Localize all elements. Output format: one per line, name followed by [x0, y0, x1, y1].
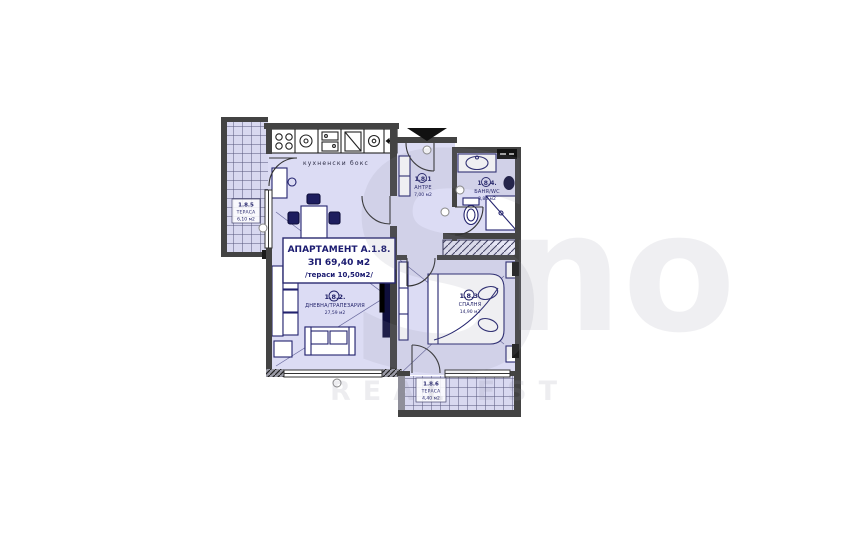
bedroom-label: 1.8.3. СПАЛНЯ 14,90 м2	[459, 290, 482, 315]
floor-plan-page: кухненски бокс АПАРТАМЕНТ А.1.8. ЗП 69,4…	[0, 0, 846, 557]
terrace-left-id: 1.8.5	[238, 203, 254, 209]
chair-icon	[329, 212, 340, 224]
living-room-id: 1.8.2.	[325, 293, 346, 301]
bed	[428, 274, 504, 344]
wall-sink-icon	[504, 177, 514, 190]
grid-marker	[333, 379, 341, 387]
living-window	[284, 370, 382, 377]
terrace-bottom-name: ТЕРАСА	[421, 389, 442, 395]
terrace-window	[265, 190, 272, 248]
terrace-bottom-id: 1.8.6	[423, 382, 439, 388]
apartment-info-box: АПАРТАМЕНТ А.1.8. ЗП 69,40 м2 /тераси 10…	[283, 238, 395, 283]
entry-name: АНТРЕ	[414, 185, 431, 191]
toilet-icon	[463, 198, 479, 225]
radiator	[512, 344, 519, 358]
terrace-left-label: 1.8.5 ТЕРАСА 6,10 м2	[232, 199, 260, 223]
bath-id: 1.8.4.	[477, 180, 496, 187]
terrace-bottom-label: 1.8.6 ТЕРАСА 4,40 м2	[416, 378, 446, 402]
grid-marker	[441, 208, 449, 216]
grid-marker	[259, 224, 267, 232]
bath-area: 3,80 м2	[478, 196, 496, 202]
chair-icon	[307, 194, 320, 204]
bedroom-id: 1.8.3.	[460, 292, 481, 300]
apartment-title: АПАРТАМЕНТ А.1.8.	[288, 245, 391, 255]
entry-id: 1.8.1	[414, 176, 431, 183]
apartment-terraces: /тераси 10,50м2/	[305, 271, 373, 279]
chair-icon	[288, 212, 299, 224]
terrace-left-floor	[226, 122, 268, 252]
wardrobe	[443, 240, 516, 256]
entry-area: 7,00 м2	[414, 192, 432, 198]
bedroom-window	[445, 370, 510, 377]
entry-label: 1.8.1 АНТРЕ 7,00 м2	[414, 174, 432, 199]
living-room-area: 27,59 м2	[325, 310, 346, 316]
living-room-name: ДНЕВНА/ТРАПЕЗАРИЯ	[305, 303, 365, 309]
grid-marker	[456, 186, 464, 194]
kitchen-counter	[271, 129, 398, 153]
bedroom-name: СПАЛНЯ	[459, 302, 482, 308]
grid-marker	[423, 146, 431, 154]
bath-name: БАНЯ/WC	[474, 189, 500, 195]
terrace-bottom-area: 4,40 м2	[422, 396, 440, 402]
apartment-area: ЗП 69,40 м2	[308, 258, 370, 268]
floor-plan: кухненски бокс АПАРТАМЕНТ А.1.8. ЗП 69,4…	[0, 0, 846, 557]
side-table	[274, 341, 292, 357]
entry-cabinet	[399, 156, 410, 196]
radiator	[512, 262, 519, 276]
bedroom-area: 14,90 м2	[460, 309, 481, 315]
kitchen-label: кухненски бокс	[303, 160, 369, 167]
terrace-left-area: 6,10 м2	[237, 217, 255, 223]
vanity-sink-icon	[458, 154, 496, 172]
watermark-letters-no: no	[505, 177, 736, 369]
terrace-left-name: ТЕРАСА	[236, 210, 257, 216]
panel-badge	[497, 149, 517, 159]
loveseat	[305, 327, 355, 355]
